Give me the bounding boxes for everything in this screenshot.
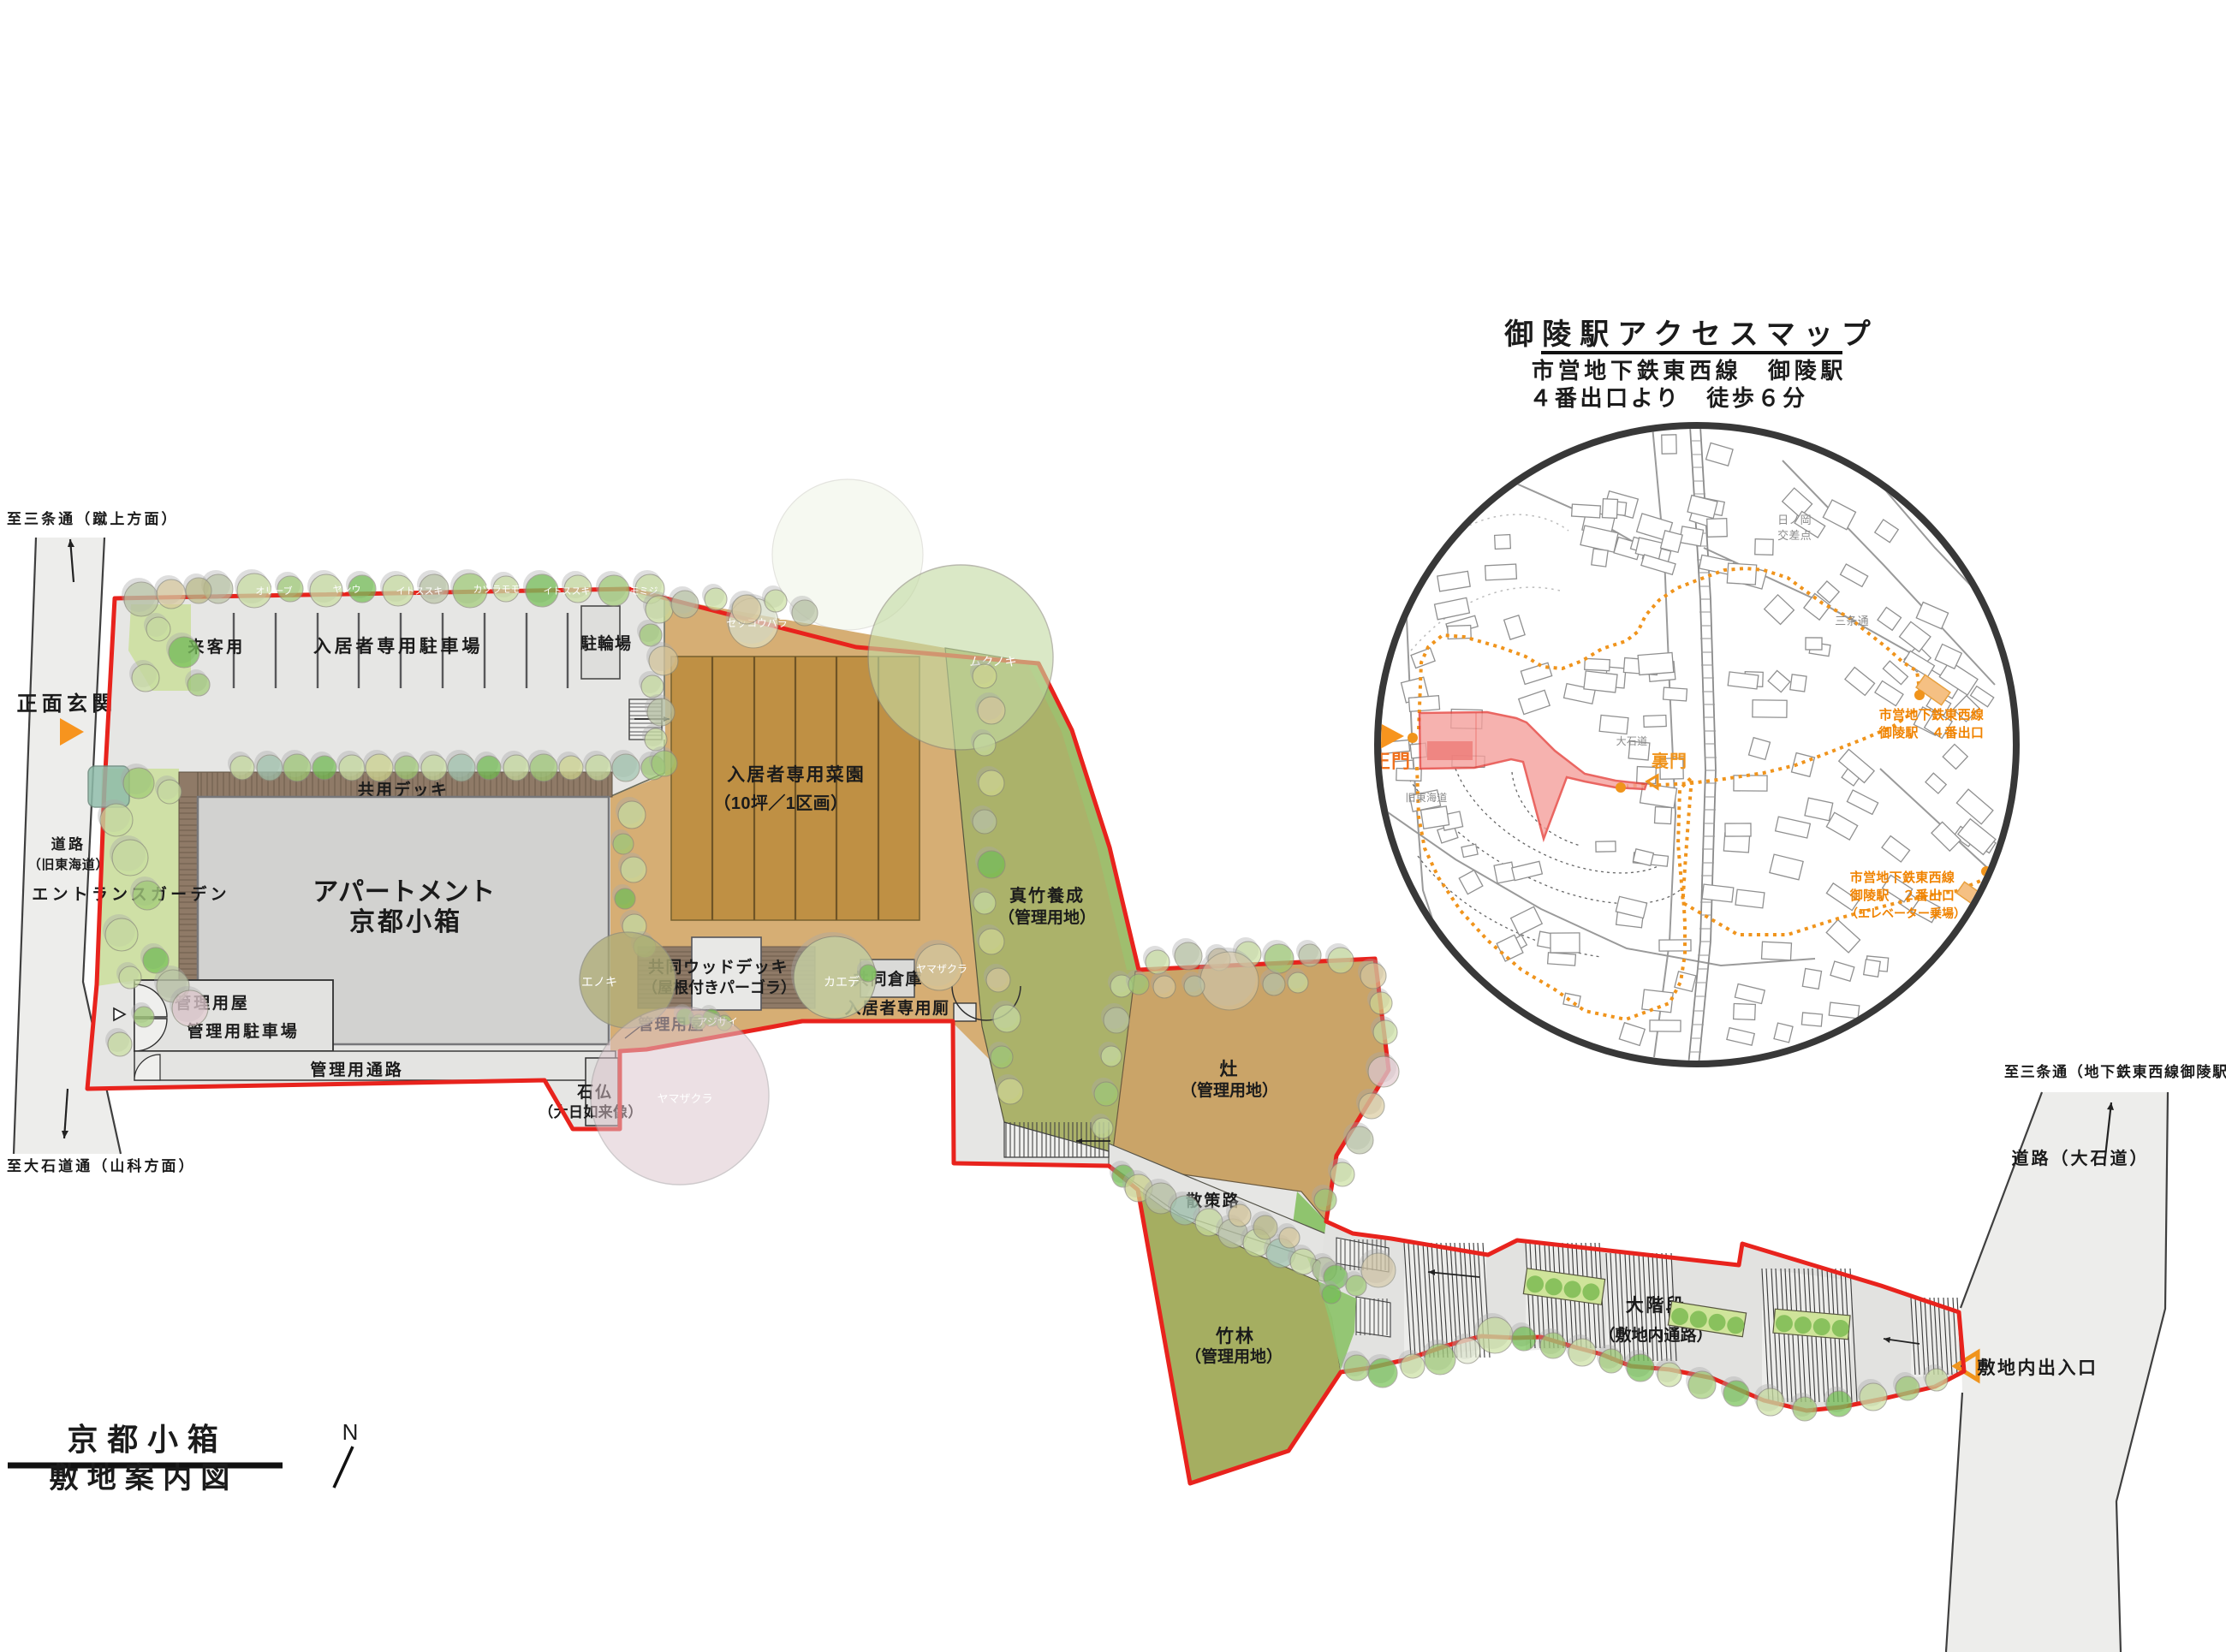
svg-text:イトススキ: イトススキ: [396, 586, 443, 597]
svg-text:管理用通路: 管理用通路: [310, 1060, 403, 1079]
svg-text:入居者専用菜園: 入居者専用菜園: [727, 764, 866, 785]
svg-text:ヤンウ: ヤンウ: [333, 584, 361, 595]
svg-text:駐輪場: 駐輪場: [580, 633, 632, 653]
svg-text:京都小箱: 京都小箱: [67, 1422, 227, 1457]
svg-text:N: N: [342, 1419, 359, 1445]
svg-text:４番出口より 徒歩６分: ４番出口より 徒歩６分: [1529, 385, 1808, 411]
svg-text:灶: 灶: [1219, 1060, 1239, 1079]
svg-text:至三条通（蹴上方面）: 至三条通（蹴上方面）: [7, 510, 179, 527]
svg-text:敷地内出入口: 敷地内出入口: [1977, 1358, 2098, 1378]
svg-text:至大石道通（山科方面）: 至大石道通（山科方面）: [7, 1157, 196, 1174]
svg-text:オリーブ: オリーブ: [255, 585, 292, 597]
svg-text:御陵駅 ４番出口: 御陵駅 ４番出口: [1878, 725, 1984, 740]
svg-text:（旧東海道）: （旧東海道）: [28, 857, 110, 872]
svg-text:市営地下鉄東西線: 市営地下鉄東西線: [1879, 707, 1984, 722]
svg-text:道路（大石道）: 道路（大石道）: [2012, 1148, 2150, 1168]
svg-text:敷地案内図: 敷地案内図: [50, 1462, 239, 1495]
svg-text:至三条通（地下鉄東西線御陵駅方面）: 至三条通（地下鉄東西線御陵駅方面）: [2004, 1063, 2226, 1080]
svg-text:（管理用地）: （管理用地）: [1181, 1080, 1278, 1100]
svg-text:カエデ: カエデ: [824, 975, 860, 989]
svg-text:道路: 道路: [51, 835, 86, 853]
svg-text:御陵駅アクセスマップ: 御陵駅アクセスマップ: [1503, 318, 1879, 351]
svg-text:真竹養成: 真竹養成: [1009, 885, 1085, 906]
svg-text:イトススキ: イトススキ: [544, 586, 591, 597]
svg-text:正面玄関: 正面玄関: [16, 692, 116, 716]
svg-text:（管理用地）: （管理用地）: [998, 907, 1096, 927]
svg-text:（エレベーター乗場）: （エレベーター乗場）: [1846, 906, 1966, 920]
svg-text:交差点: 交差点: [1777, 529, 1812, 542]
svg-text:入居者専用駐車場: 入居者専用駐車場: [313, 636, 483, 657]
svg-text:御陵駅 ２番出口: 御陵駅 ２番出口: [1849, 888, 1955, 903]
svg-text:大石道: 大石道: [1616, 735, 1648, 747]
svg-text:三条通: 三条通: [1835, 615, 1869, 627]
svg-text:日ノ岡: 日ノ岡: [1777, 514, 1812, 526]
svg-text:管理用駐車場: 管理用駐車場: [187, 1021, 299, 1041]
svg-text:市営地下鉄東西線: 市営地下鉄東西線: [1850, 870, 1955, 885]
svg-text:京都小箱: 京都小箱: [349, 907, 462, 936]
svg-text:カツラモモ: カツラモモ: [473, 584, 521, 595]
svg-text:ヤマザクラ: ヤマザクラ: [657, 1092, 712, 1105]
svg-text:竹林: 竹林: [1215, 1326, 1255, 1346]
svg-text:旧東海道: 旧東海道: [1406, 791, 1448, 804]
svg-text:裏門: 裏門: [1651, 751, 1687, 771]
svg-text:アパートメント: アパートメント: [312, 878, 496, 906]
svg-text:エノキ: エノキ: [581, 975, 617, 989]
svg-text:（10坪／1区画）: （10坪／1区画）: [714, 793, 848, 813]
svg-text:（管理用地）: （管理用地）: [1185, 1346, 1283, 1366]
svg-text:市営地下鉄東西線 御陵駅: 市営地下鉄東西線 御陵駅: [1532, 358, 1847, 383]
svg-text:ヤマザクラ: ヤマザクラ: [916, 963, 967, 975]
